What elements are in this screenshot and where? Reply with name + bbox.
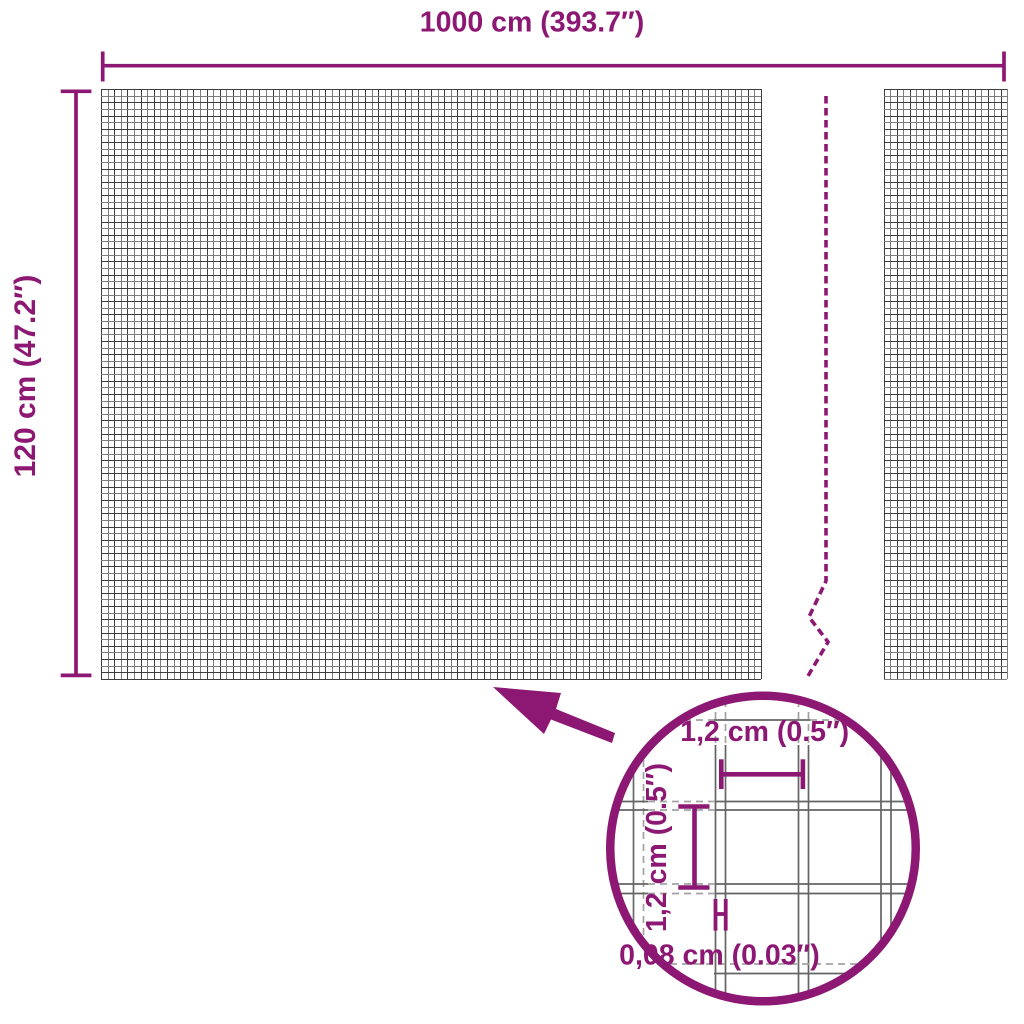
- svg-text:1,2 cm (0.5″): 1,2 cm (0.5″): [680, 716, 849, 748]
- svg-text:1,2 cm (0.5″): 1,2 cm (0.5″): [641, 763, 673, 932]
- svg-text:120 cm (47.2″): 120 cm (47.2″): [9, 275, 42, 478]
- svg-text:1000 cm (393.7″): 1000 cm (393.7″): [420, 7, 644, 39]
- svg-text:0,08 cm (0.03″): 0,08 cm (0.03″): [619, 940, 820, 972]
